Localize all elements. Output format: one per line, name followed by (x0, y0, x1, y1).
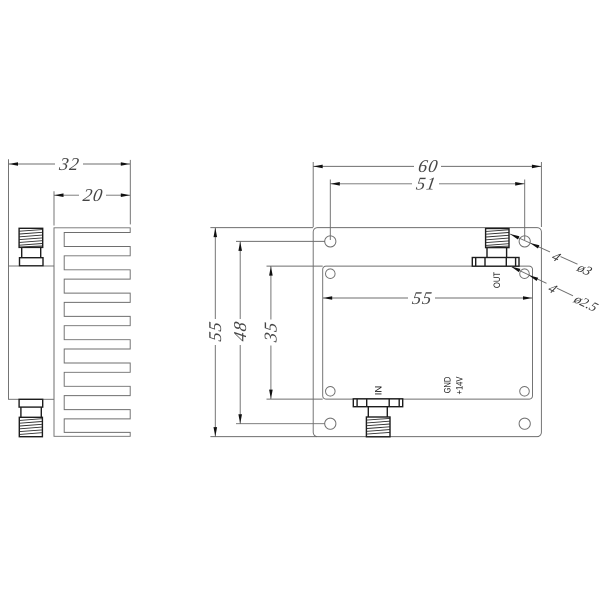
svg-text:IN: IN (374, 386, 384, 396)
svg-text:32: 32 (57, 154, 81, 174)
svg-text:+14V: +14V (454, 377, 464, 395)
svg-text:20: 20 (82, 185, 105, 205)
svg-text:OUT: OUT (492, 271, 502, 288)
svg-text:48: 48 (230, 319, 250, 342)
svg-text:GND: GND (442, 376, 452, 393)
svg-text:55: 55 (205, 319, 225, 342)
svg-text:55: 55 (411, 288, 434, 308)
svg-text:51: 51 (415, 174, 438, 194)
svg-text:35: 35 (261, 320, 281, 344)
